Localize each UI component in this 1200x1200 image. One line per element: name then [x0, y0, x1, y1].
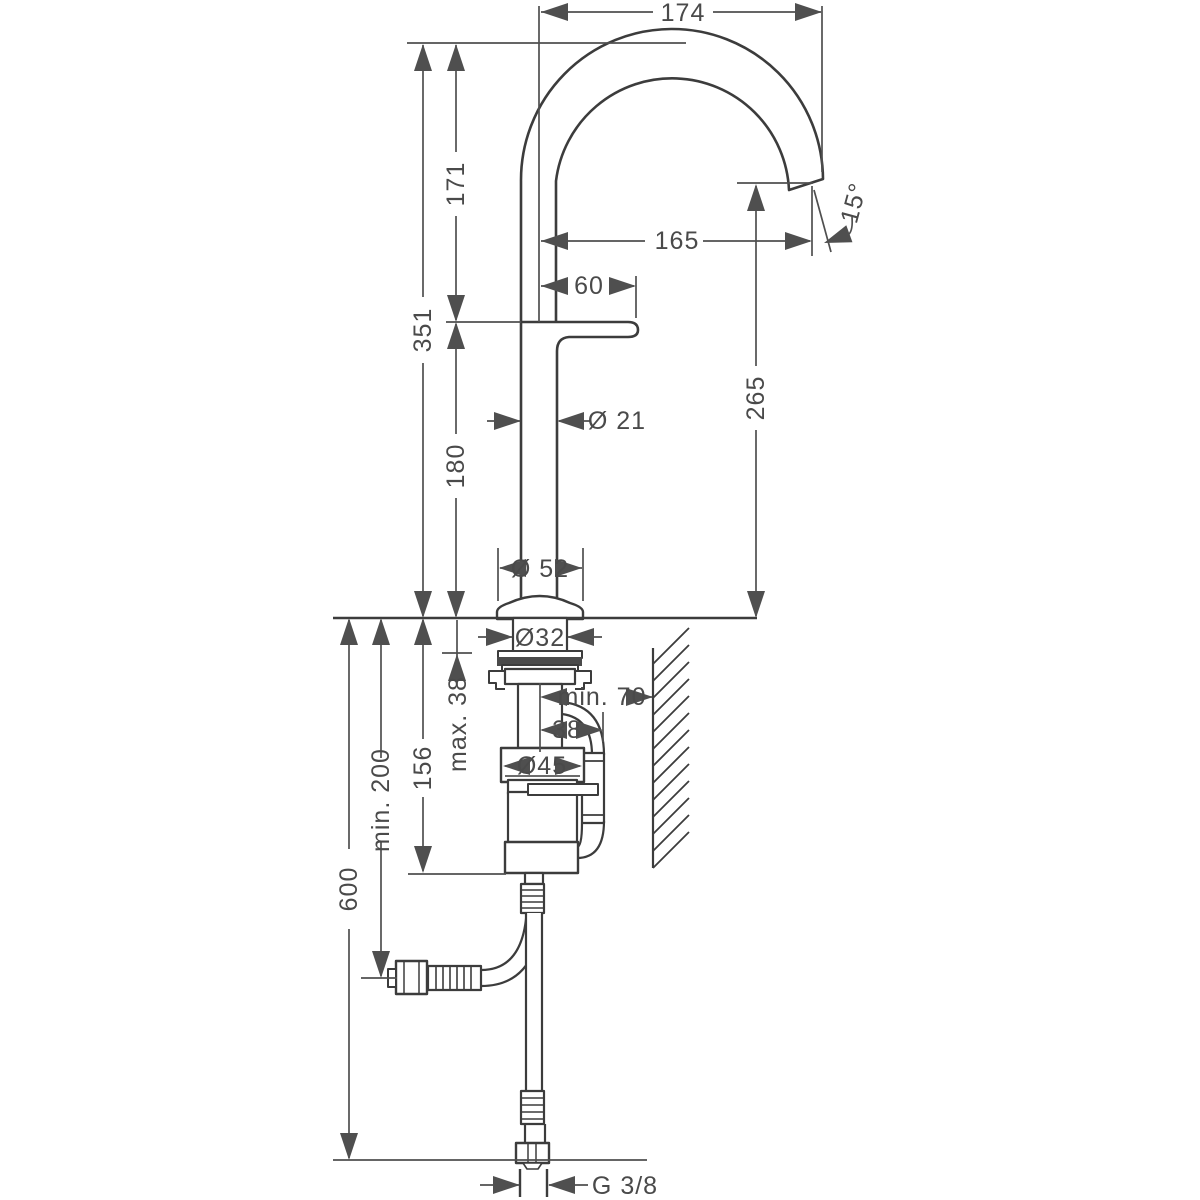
dim-351: 351	[409, 44, 437, 618]
dim-165-label: 165	[655, 227, 700, 255]
dim-min70-label: min. 70	[558, 683, 647, 711]
dim-600-label: 600	[335, 867, 363, 912]
dim-dia32: Ø32	[478, 624, 602, 652]
dim-600: 600	[335, 618, 363, 1160]
dim-156: 156	[409, 618, 437, 873]
fitting-nut	[396, 961, 427, 994]
outlet-pipe	[520, 1169, 547, 1197]
dim-dia52-label: Ø 52	[511, 555, 569, 583]
technical-drawing-page: 17417135116515°60265Ø 21180Ø 52Ø32max. 3…	[0, 0, 1200, 1200]
dim-dia45-label: Ø45	[517, 752, 567, 780]
dim-max38-label: max. 38	[444, 676, 472, 772]
dim-165: 165	[541, 227, 812, 255]
dim-180: 180	[442, 322, 470, 618]
escutcheon	[497, 596, 583, 619]
dim-171: 171	[442, 44, 470, 322]
hose-neck	[525, 873, 543, 884]
dim-dia21-label: Ø 21	[588, 407, 646, 435]
dim-180-label: 180	[442, 444, 470, 489]
hose-straight-fill	[527, 913, 541, 1091]
dim-351-label: 351	[409, 308, 437, 353]
dim-dia21: Ø 21	[487, 407, 646, 435]
dim-15deg: 15°	[824, 180, 873, 243]
dim-min200-label: min. 200	[367, 748, 395, 852]
dim-174-label: 174	[661, 0, 706, 27]
faucet-technical-diagram: 17417135116515°60265Ø 21180Ø 52Ø32max. 3…	[0, 0, 1200, 1200]
washer-top	[498, 651, 582, 658]
valve-body	[508, 792, 577, 843]
dim-60-label: 60	[574, 272, 604, 300]
hose-neck-2	[525, 1124, 545, 1143]
spout-outline	[521, 29, 823, 600]
wall-hatching	[653, 628, 689, 868]
dim-156-label: 156	[409, 746, 437, 791]
dim-g38-label: G 3/8	[592, 1172, 658, 1200]
bracket-plate	[528, 784, 598, 795]
dim-38-label: 38	[552, 716, 582, 744]
dim-g38: G 3/8	[480, 1172, 658, 1200]
hook-left	[489, 671, 505, 689]
dim-min70: min. 70	[540, 683, 653, 711]
dim-max38: max. 38	[442, 620, 472, 772]
dim-15deg-label: 15°	[835, 180, 873, 227]
dim-265: 265	[742, 184, 770, 618]
bottom-block	[505, 842, 578, 873]
dim-265-label: 265	[742, 376, 770, 421]
dimension-annotations: 17417135116515°60265Ø 21180Ø 52Ø32max. 3…	[335, 0, 873, 1200]
dim-174: 174	[541, 0, 822, 27]
dim-dia52: Ø 52	[498, 548, 583, 601]
mounting-nut	[505, 669, 575, 684]
dim-min200: min. 200	[367, 618, 395, 978]
dim-171-label: 171	[442, 162, 470, 207]
outlet-chamfer	[523, 1163, 542, 1169]
dim-dia32-label: Ø32	[515, 624, 565, 652]
